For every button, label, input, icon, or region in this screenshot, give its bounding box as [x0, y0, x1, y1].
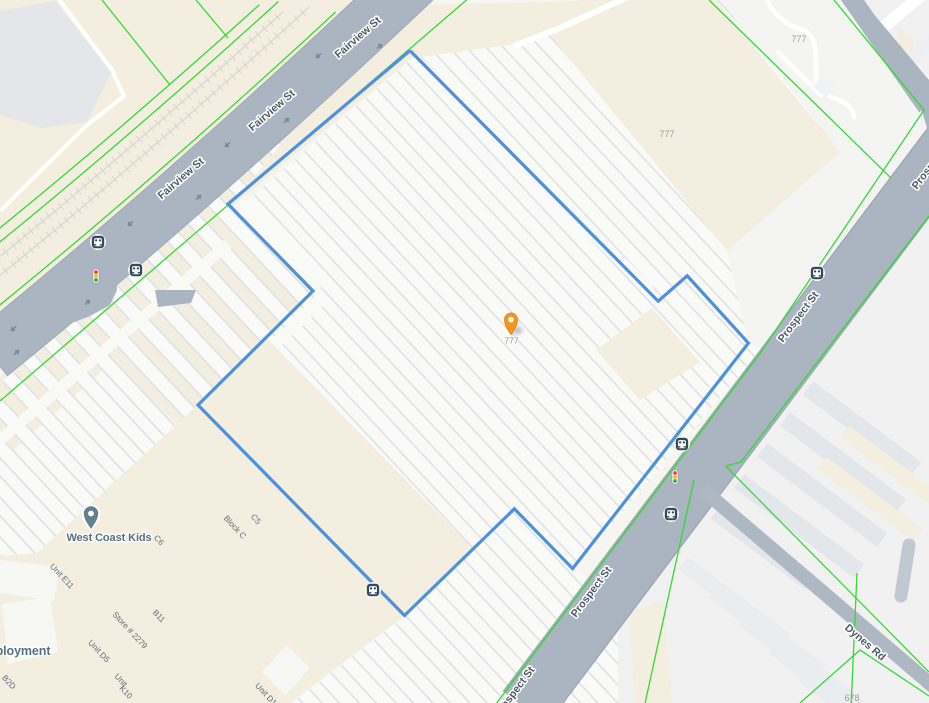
svg-text:777: 777	[791, 34, 806, 44]
svg-text:777: 777	[504, 336, 518, 346]
svg-text:ployment: ployment	[0, 644, 51, 658]
svg-text:678: 678	[844, 693, 859, 703]
svg-text:777: 777	[659, 129, 674, 139]
svg-text:West Coast Kids: West Coast Kids	[66, 532, 151, 544]
